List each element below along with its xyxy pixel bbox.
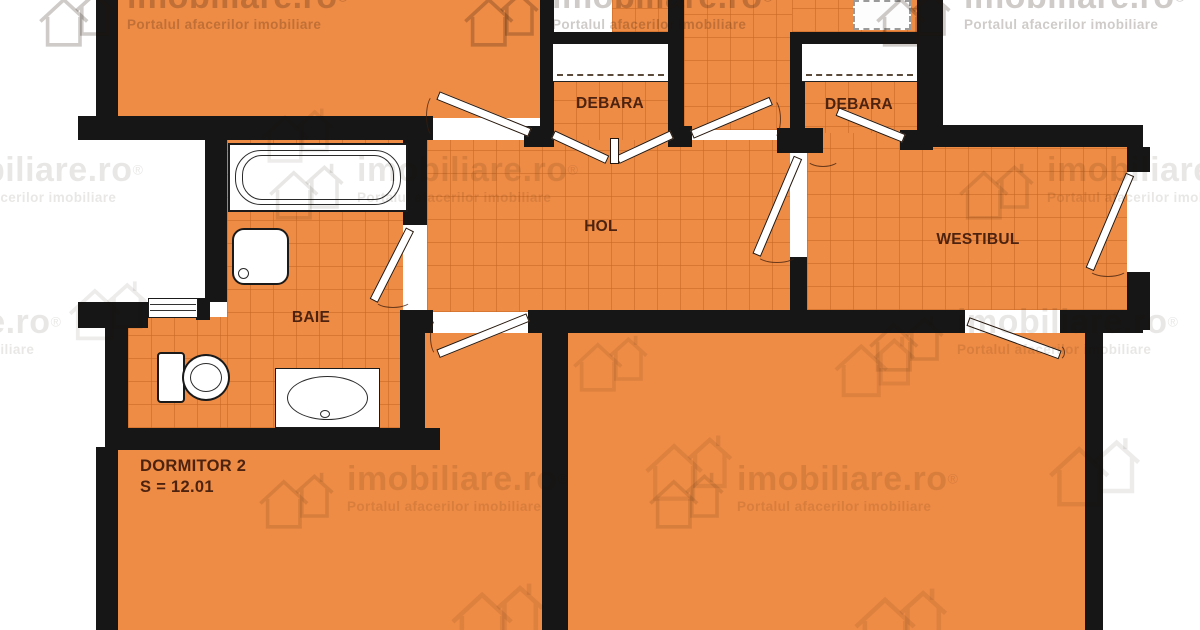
wall: [205, 138, 227, 302]
room-bottom-right: [568, 333, 1085, 630]
label-dormitor-2-name: DORMITOR 2: [140, 456, 246, 477]
wall: [400, 312, 425, 450]
watermark-brand: imobiliare.ro: [964, 0, 1175, 16]
door-arc: [806, 150, 840, 167]
wall: [528, 310, 580, 333]
wall: [96, 447, 118, 630]
toilet-bowl: [182, 354, 230, 401]
wall: [542, 333, 568, 630]
window: [148, 298, 198, 318]
door-arc: [374, 291, 412, 308]
watermark-tagline: Portalul afacerilor imobiliare: [0, 343, 61, 357]
door-arc: [1088, 260, 1128, 277]
door-arc: [1048, 344, 1065, 361]
wall: [1127, 147, 1150, 172]
wall: [668, 0, 684, 130]
watermark-brand: imobiliare.ro: [0, 151, 133, 189]
wall: [900, 130, 933, 150]
watermark-brand: imobiliare.ro: [0, 303, 51, 341]
watermark-tagline: Portalul afacerilor imobiliare: [964, 18, 1185, 32]
door-arc: [430, 318, 446, 356]
label-dormitor-2: DORMITOR 2 S = 12.01: [140, 456, 246, 498]
watermark: imobiliare.ro® Portalul afacerilor imobi…: [0, 305, 61, 357]
floor-plan: DEBARA DEBARA HOL WESTIBUL BAIE DORMITOR…: [0, 0, 1200, 630]
wall: [196, 298, 210, 320]
closet-shelf: [553, 44, 668, 82]
label-hol: HOL: [584, 218, 618, 236]
door-arc: [426, 94, 444, 138]
sink: [275, 368, 380, 428]
watermark-reg: ®: [1175, 0, 1185, 5]
watermark: imobiliare.ro® Portalul afacerilor imobi…: [0, 153, 143, 230]
wall: [790, 257, 807, 312]
door-arc: [756, 245, 798, 263]
wall: [930, 125, 1143, 147]
wall: [1085, 330, 1103, 630]
label-debara-2: DEBARA: [825, 96, 893, 114]
label-baie: BAIE: [292, 309, 330, 327]
wall: [802, 32, 917, 44]
strip-above-debara-1: [612, 0, 668, 32]
bathtub: [228, 143, 408, 212]
toilet: [157, 352, 185, 403]
door-arc: [762, 98, 781, 140]
wall: [777, 128, 823, 153]
watermark-reg: ®: [51, 314, 61, 330]
wall: [78, 116, 433, 140]
wall: [553, 32, 668, 44]
wall: [917, 0, 943, 133]
wall: [540, 0, 554, 147]
watermark-reg: ®: [1168, 314, 1178, 330]
watermark-tagline: Portalul afacerilor imobiliare: [0, 191, 143, 205]
closet-shelf: [802, 44, 917, 82]
wall: [580, 310, 965, 333]
room-top-left: [118, 0, 540, 118]
wall: [105, 428, 440, 450]
dashed-hatch: [853, 0, 911, 30]
label-debara-1: DEBARA: [576, 95, 644, 113]
washing-machine: [232, 228, 289, 285]
door-debara-1-stop: [610, 138, 619, 164]
room-westibul: [807, 133, 1127, 310]
label-dormitor-2-area: S = 12.01: [140, 477, 246, 498]
label-westibul: WESTIBUL: [936, 231, 1019, 249]
watermark-reg: ®: [133, 162, 143, 178]
